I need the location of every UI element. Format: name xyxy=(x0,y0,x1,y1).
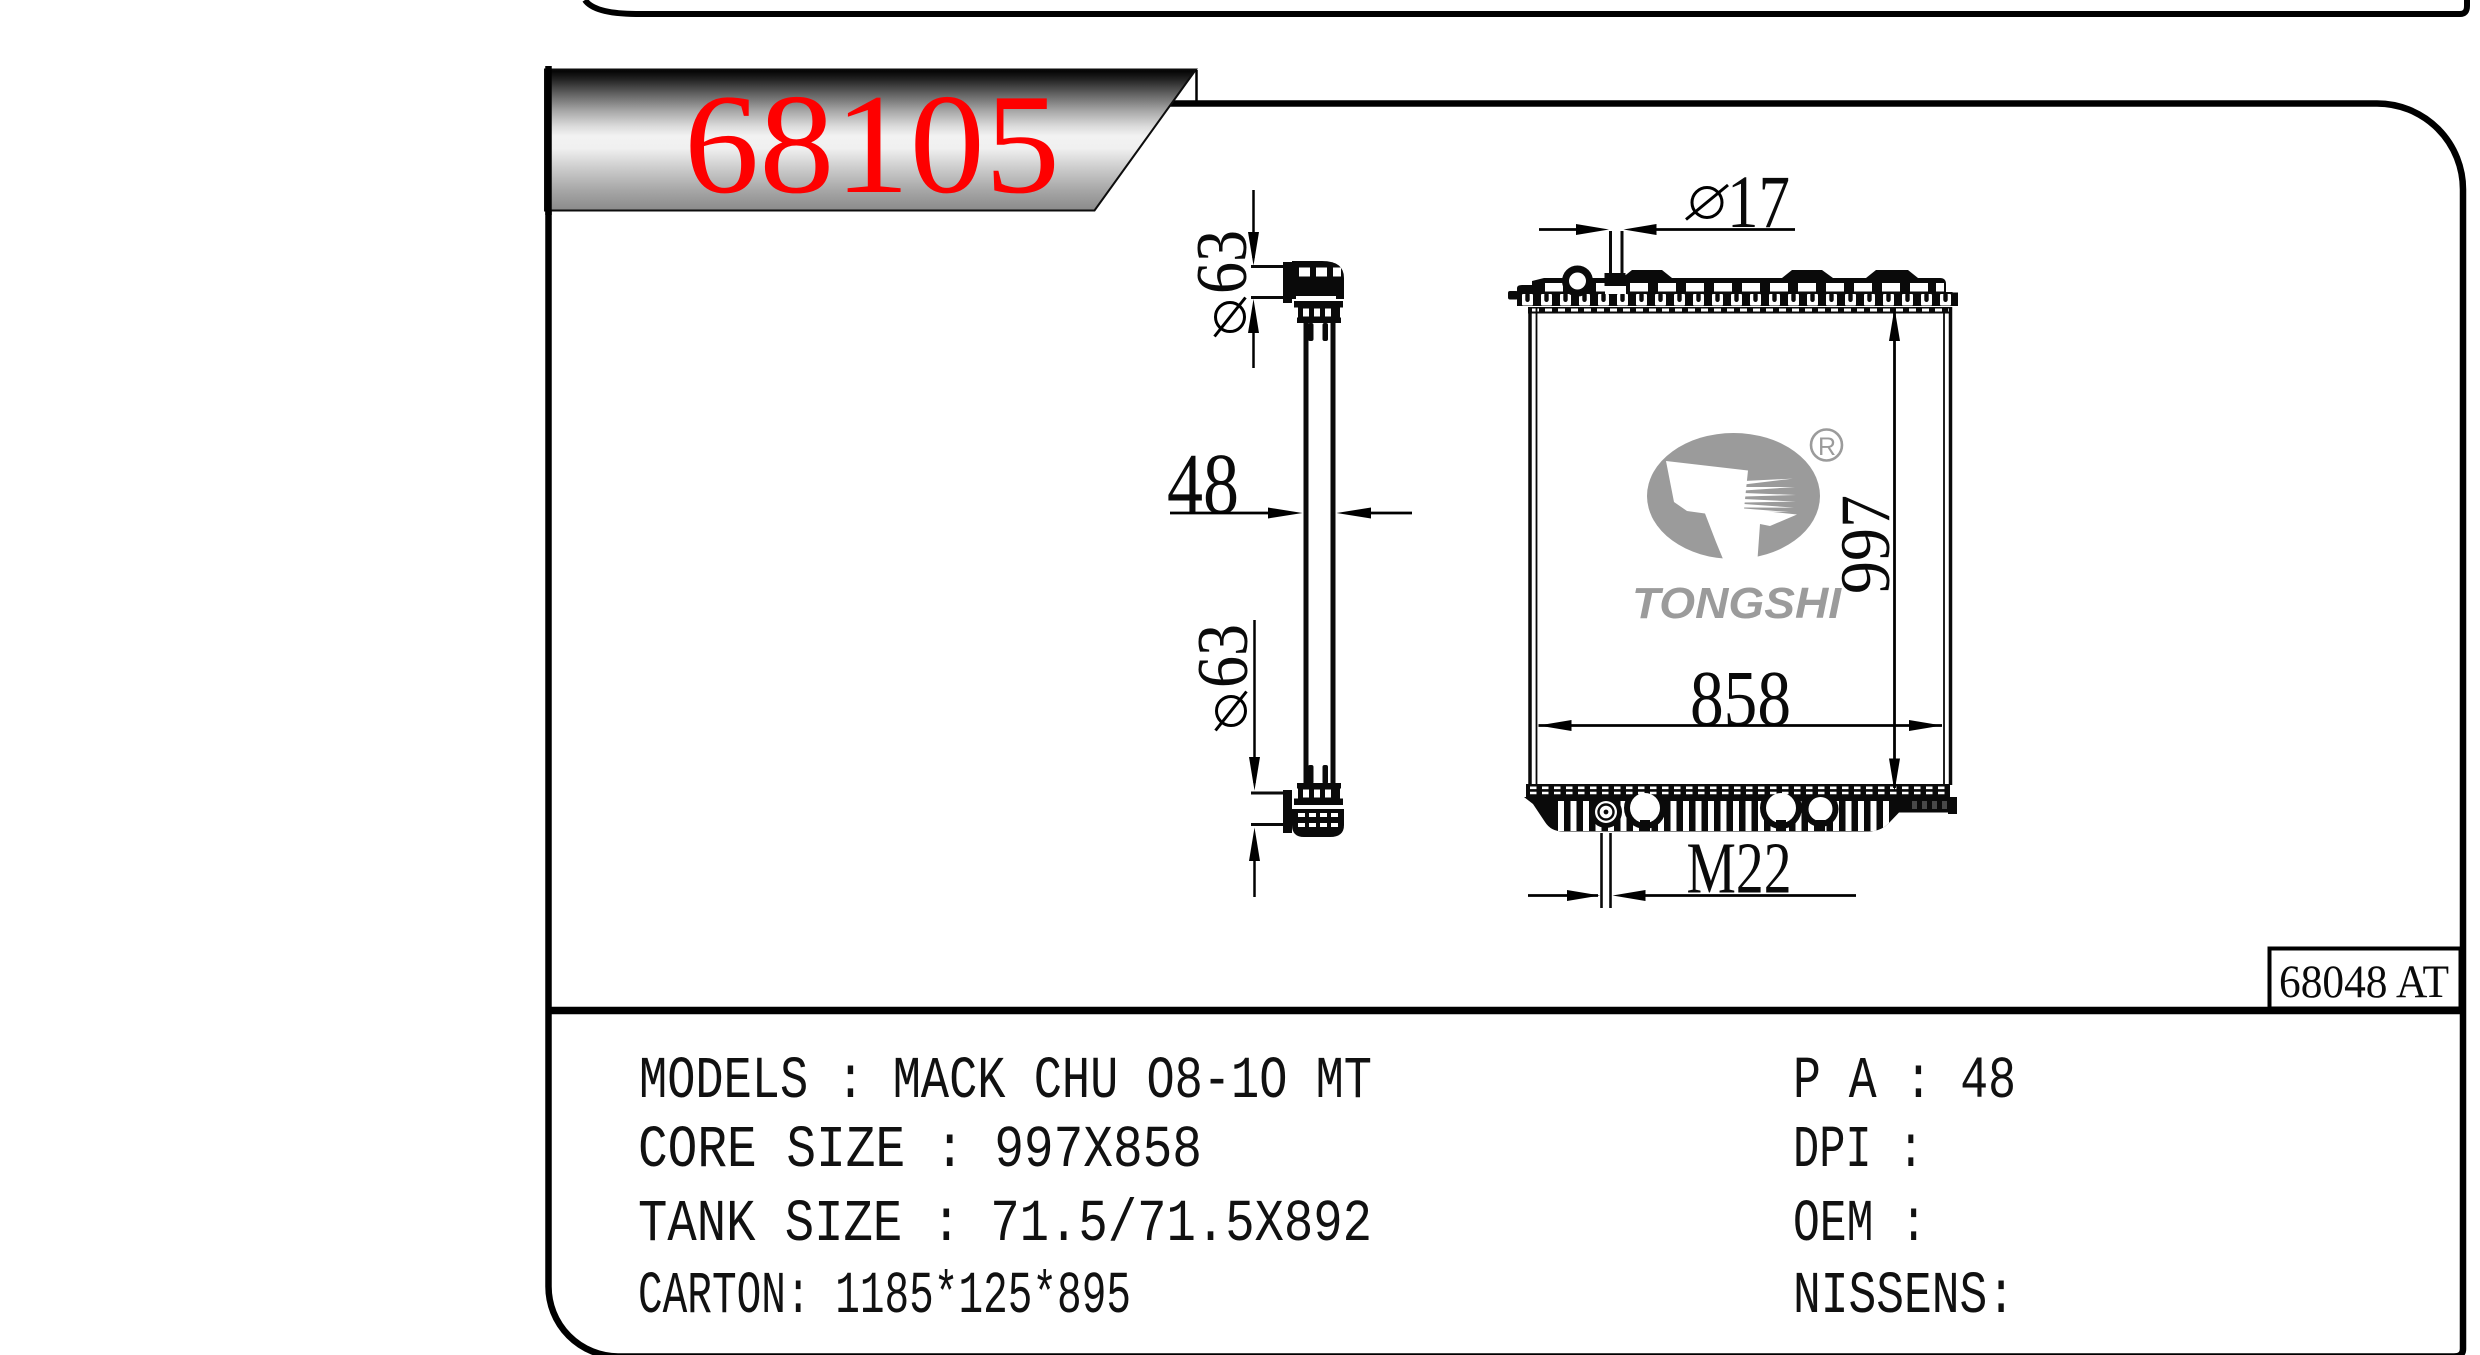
svg-text:68105: 68105 xyxy=(684,65,1060,223)
svg-text:M22: M22 xyxy=(1687,828,1792,909)
svg-text:R: R xyxy=(1818,433,1836,461)
svg-text:MODELS : MACK CHU O8-1O MT: MODELS : MACK CHU O8-1O MT xyxy=(639,1049,1372,1116)
svg-text:997: 997 xyxy=(1826,495,1905,594)
svg-text:NISSENS:: NISSENS: xyxy=(1793,1264,2015,1331)
svg-text:68048 AT: 68048 AT xyxy=(2279,955,2449,1008)
svg-text:CARTON: 1185*125*895: CARTON: 1185*125*895 xyxy=(638,1264,1131,1331)
svg-text:63: 63 xyxy=(1183,230,1263,294)
svg-text:P A : 48: P A : 48 xyxy=(1793,1049,2016,1116)
svg-text:TANK SIZE : 71.5/71.5X892: TANK SIZE : 71.5/71.5X892 xyxy=(638,1192,1372,1259)
svg-text:TONGSHI: TONGSHI xyxy=(1632,579,1842,628)
svg-text:OEM :: OEM : xyxy=(1793,1192,1927,1259)
svg-text:48: 48 xyxy=(1167,436,1239,533)
svg-text:63: 63 xyxy=(1184,624,1264,688)
svg-text:DPI :: DPI : xyxy=(1793,1118,1924,1185)
svg-text:CORE SIZE : 997X858: CORE SIZE : 997X858 xyxy=(638,1118,1202,1185)
svg-text:17: 17 xyxy=(1727,161,1790,244)
svg-text:858: 858 xyxy=(1690,655,1791,742)
